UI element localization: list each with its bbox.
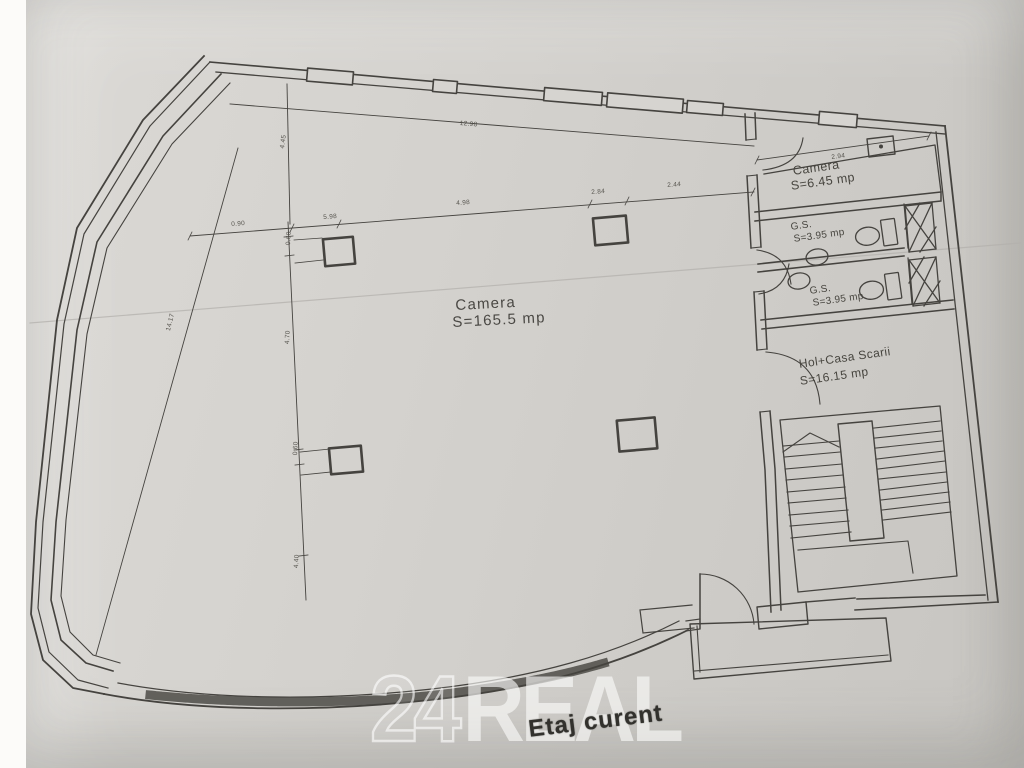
bottom-wall	[104, 621, 688, 708]
column	[329, 446, 363, 475]
wall-hatching	[150, 662, 608, 702]
window	[307, 68, 354, 85]
entrance-landing	[690, 618, 891, 679]
stair-landing	[798, 541, 913, 573]
window	[544, 88, 603, 106]
dimension-text: 0.60	[292, 441, 300, 455]
staircase	[780, 406, 957, 592]
toilet-icon	[858, 272, 902, 303]
window	[687, 101, 724, 116]
dimension-text: 2.44	[667, 181, 681, 189]
window	[433, 80, 458, 94]
dimension-text: 5.98	[323, 213, 337, 221]
dimension-text: 4.70	[284, 330, 292, 344]
stairwell-boundary	[780, 406, 957, 592]
door-arc-gs-lobby	[757, 250, 791, 284]
window	[818, 111, 857, 127]
dimension-text: 2.84	[591, 188, 605, 196]
dimension-text: 12.98	[459, 120, 477, 128]
dimension-text: 4.98	[456, 199, 470, 207]
right-wall	[936, 126, 998, 602]
door-arc-entrance	[700, 574, 754, 624]
dimension-text: 0.60	[285, 231, 293, 245]
stair-divider	[838, 421, 884, 541]
dimension-text: 0.90	[231, 220, 245, 228]
toilet-icon	[854, 218, 898, 249]
floor-plan-photo: Camera S=165.5 mp Camera S=6.45 mp G.S. …	[0, 0, 1024, 768]
left-wall	[31, 56, 230, 694]
column	[323, 237, 355, 267]
stair-steps-right	[874, 421, 951, 520]
column	[617, 417, 658, 451]
floor-plan-drawing	[0, 0, 1024, 768]
window	[607, 93, 684, 113]
column	[593, 216, 628, 246]
columns	[323, 216, 657, 475]
stair-arrow	[783, 433, 839, 452]
dimension-text: 4.40	[293, 554, 301, 568]
